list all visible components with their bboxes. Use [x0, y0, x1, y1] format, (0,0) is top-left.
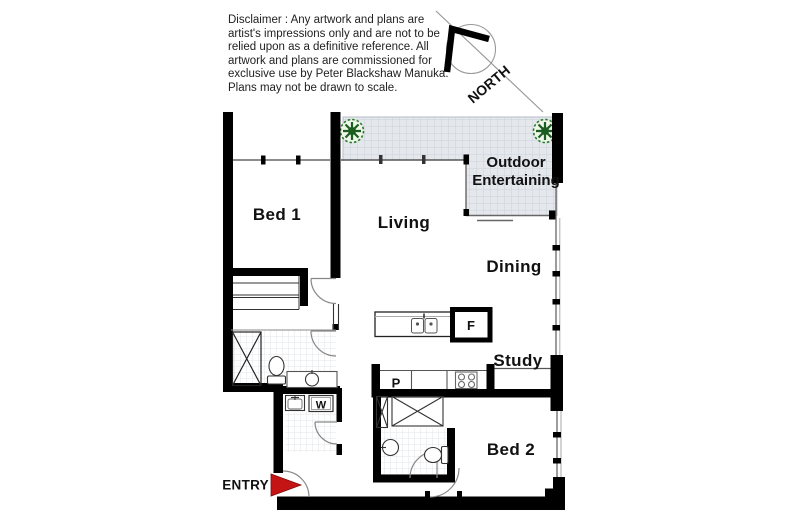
- entry-arrow-icon: [271, 474, 301, 496]
- basin-icon: [287, 370, 337, 388]
- robe-icon: [392, 397, 443, 427]
- washer-label: W: [316, 400, 327, 412]
- floor-plan-page: Disclaimer : Any artwork and plans are a…: [0, 0, 790, 527]
- room-label-study: Study: [493, 351, 542, 370]
- north-label: NORTH: [465, 62, 513, 106]
- room-label-living: Living: [378, 213, 430, 232]
- washer-icon: W: [309, 396, 333, 412]
- room-label-bed1: Bed 1: [253, 205, 301, 224]
- laundry-hall-floor: [285, 412, 336, 452]
- pantry-label: P: [392, 376, 401, 391]
- cooktop-icon: [456, 372, 478, 389]
- fridge-label: F: [467, 318, 475, 333]
- laundry-tub-icon: [286, 396, 305, 411]
- room-label-outdoor-2: Entertaining: [472, 172, 560, 189]
- room-label-dining: Dining: [486, 257, 541, 276]
- floor-plan-drawing: NORTH: [0, 0, 790, 527]
- plant-icon: [341, 120, 364, 143]
- robe-icon: [233, 276, 299, 310]
- toilet-icon: [268, 357, 286, 385]
- room-label-bed2: Bed 2: [487, 440, 535, 459]
- toilet-icon: [425, 447, 449, 464]
- entry-label: ENTRY: [222, 478, 269, 493]
- room-label-outdoor-1: Outdoor: [486, 154, 545, 171]
- fridge: F: [453, 310, 491, 341]
- kitchen-island: [375, 312, 453, 337]
- north-compass-icon: NORTH: [436, 11, 543, 112]
